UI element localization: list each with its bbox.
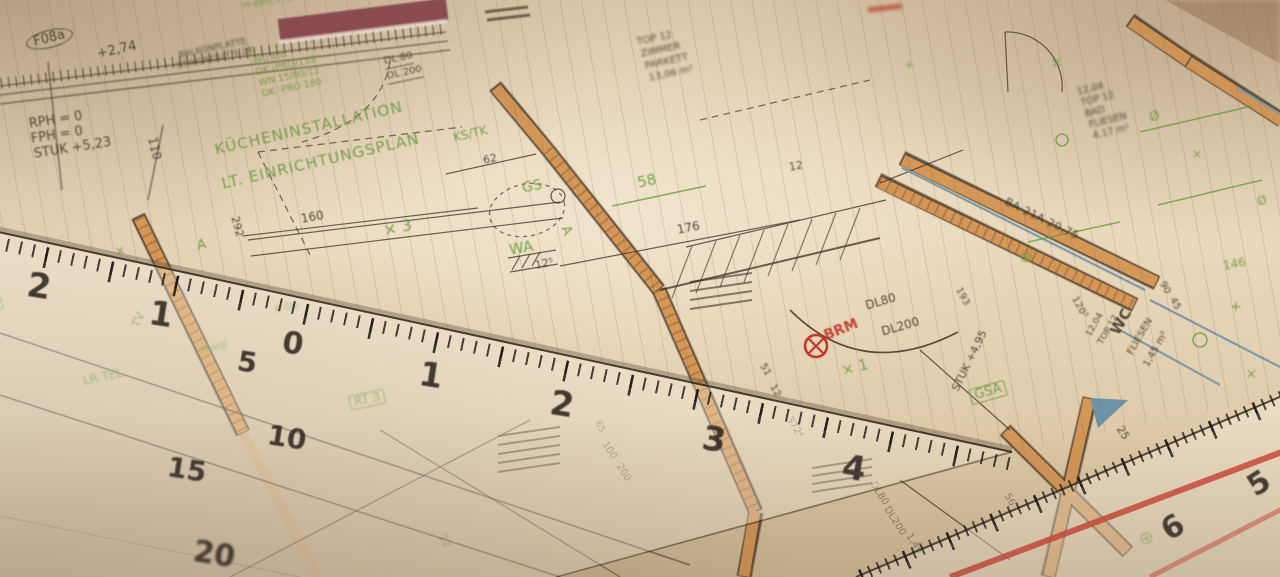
photo-floorplan-with-rulers: F08a +2,74 BALKONPLATTE ST.MONOLIT S 28 … [0,0,1280,577]
setsquare-inner-15: 15 [165,452,208,487]
setsquare-inner-10: 10 [265,420,308,455]
setsquare-inner-20: 20 [191,536,237,574]
